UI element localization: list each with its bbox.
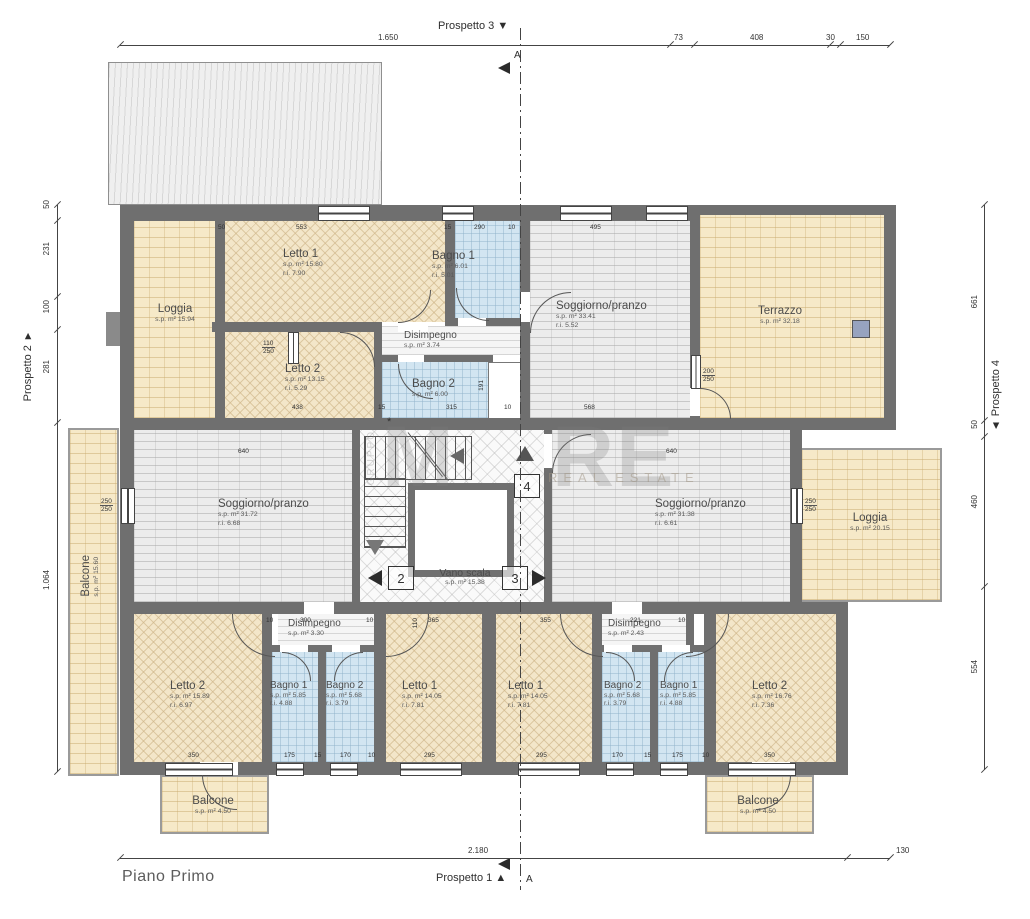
- dim-label: 1.650: [378, 33, 398, 42]
- dim-label: 231: [42, 242, 51, 255]
- window: [646, 206, 688, 221]
- marker-2: 2: [388, 566, 414, 590]
- room-label: Disimpegno s.p. m² 3.74: [404, 330, 494, 350]
- wall-dim: 110: [412, 618, 419, 628]
- prospetto-3-label: Prospetto 3 ▼: [438, 20, 508, 32]
- door-gap: [304, 602, 334, 614]
- wall-dim: 295: [424, 752, 435, 759]
- room-label: Soggiorno/pranzo s.p. m² 33.41 r.i. 5.52: [556, 300, 646, 331]
- room-label: Letto 1 s.p. m² 14.05 r.i. 7.81: [508, 680, 578, 711]
- wall-dim: 350: [188, 752, 199, 759]
- dimension-line-top: [120, 45, 890, 46]
- dimension-line-left: [57, 205, 58, 772]
- terrazzo-drain-square: [852, 320, 870, 338]
- wall: [215, 221, 225, 418]
- dimension-line-right: [984, 205, 985, 770]
- dim-label: 73: [674, 33, 683, 42]
- marker-arrow-icon: [532, 570, 546, 586]
- watermark-subtitle: REAL ESTATE: [548, 470, 700, 485]
- marker-4-label: 4: [523, 479, 530, 494]
- stair-direction-arrow-icon: [516, 446, 534, 461]
- wall-dim: 438: [292, 404, 303, 411]
- wall: [884, 205, 896, 425]
- room-label: Bagno 2 s.p. m² 6.00: [412, 378, 482, 400]
- section-arrow-icon: [498, 858, 510, 870]
- watermark-logo: M: [382, 408, 456, 507]
- door-gap: [280, 645, 308, 652]
- room-label: Balcone s.p. m² 15.60: [80, 555, 102, 597]
- wall-dim: 15: [314, 752, 321, 759]
- window: [330, 763, 358, 776]
- section-line: [520, 28, 521, 890]
- dim-label: 50: [970, 420, 979, 429]
- window-dim: 250 250: [100, 498, 113, 513]
- room-label: Bagno 2 s.p. m² 5.68 r.i. 3.79: [326, 680, 378, 709]
- wall-dim: 170: [340, 752, 351, 759]
- door-gap: [690, 388, 700, 416]
- wall-dim: 15: [644, 752, 651, 759]
- room-label: Vano scala s.p. m² 15.38: [420, 567, 510, 588]
- dim-label: 554: [970, 660, 979, 673]
- wall-dim: 10: [266, 617, 273, 624]
- dim-label: 2.180: [468, 846, 488, 855]
- wall: [212, 322, 382, 332]
- door-gap: [332, 645, 360, 652]
- room-label: Letto 2 s.p. m² 15.89 r.i. 6.97: [170, 680, 250, 711]
- dim-label: 661: [970, 295, 979, 308]
- watermark-logo: RE: [552, 408, 675, 507]
- wall-dim: 175: [284, 752, 295, 759]
- wall: [352, 430, 360, 602]
- wall-dim: 300: [300, 617, 311, 624]
- wall: [482, 614, 496, 762]
- door-gap: [612, 602, 642, 614]
- wall-dim: 50: [218, 224, 225, 231]
- wall-dim: 495: [590, 224, 601, 231]
- dim-label: 150: [856, 33, 869, 42]
- page-title: Piano Primo: [122, 868, 215, 886]
- window: [691, 355, 701, 389]
- wall-dim: 355: [540, 617, 551, 624]
- roof-hatch-area: [108, 62, 382, 205]
- room-label: Letto 1 s.p. m² 15.80 r.i. 7.90: [283, 248, 373, 279]
- wall-dim: 365: [428, 617, 439, 624]
- door-gap: [398, 355, 424, 362]
- dim-label: 1.064: [42, 570, 51, 590]
- wall-dim: 191: [478, 380, 485, 391]
- room-label: Balcone s.p. m² 4.50: [721, 795, 795, 817]
- marker-2-label: 2: [397, 571, 404, 586]
- wall-dim: 10: [504, 404, 511, 411]
- room-label: Bagno 2 s.p. m² 5.68 r.i. 3.79: [604, 680, 656, 709]
- window: [318, 206, 370, 221]
- prospetto-4-label: ▲ Prospetto 4: [990, 360, 1002, 431]
- room-label: Loggia s.p. m² 20.15: [835, 512, 905, 534]
- prospetto-1-label: Prospetto 1 ▲: [436, 872, 506, 884]
- window-dim: 200 250: [702, 368, 715, 383]
- window-dim: 110 250: [262, 340, 275, 355]
- wall-dim: 10: [508, 224, 515, 231]
- room-label: Bagno 1 s.p. m² 6.01 r.i. 5.01: [432, 250, 502, 281]
- dimension-line-bottom: [120, 858, 890, 859]
- wall-dim: 350: [764, 752, 775, 759]
- watermark-side-text: GRUPPO: [366, 430, 377, 485]
- window: [276, 763, 304, 776]
- wall-dim: 640: [238, 448, 249, 455]
- wall-dim: 221: [630, 617, 641, 624]
- wall-dim: 553: [296, 224, 307, 231]
- door-gap: [520, 292, 530, 322]
- wall-dim: 10: [702, 752, 709, 759]
- door-gap: [604, 645, 632, 652]
- dim-label: 408: [750, 33, 763, 42]
- room-label: Letto 1 s.p. m² 14.05 r.i. 7.81: [402, 680, 472, 711]
- wall-dim: 10: [368, 752, 375, 759]
- wall-dim: 170: [612, 752, 623, 759]
- room-label: Letto 2 s.p. m² 16.76 r.i. 7.36: [752, 680, 832, 711]
- room-balcone-w: [68, 428, 119, 776]
- prospetto-2-label: Prospetto 2 ▼: [22, 330, 34, 401]
- door-gap: [544, 434, 552, 468]
- dim-label: 30: [826, 33, 835, 42]
- stair-direction-arrow-icon: [366, 540, 384, 555]
- window: [442, 206, 474, 221]
- wall-dim: 175: [672, 752, 683, 759]
- marker-arrow-icon: [368, 570, 382, 586]
- wall-dim: 10: [678, 617, 685, 624]
- wall: [120, 205, 700, 221]
- window: [518, 763, 580, 776]
- window: [288, 332, 299, 364]
- window-dim: 250 250: [804, 498, 817, 513]
- dim-label: 100: [42, 300, 51, 313]
- section-mark-top: A: [514, 50, 521, 61]
- dim-label: 130: [896, 846, 909, 855]
- window: [121, 488, 135, 524]
- dim-label: 281: [42, 360, 51, 373]
- wall: [700, 205, 896, 215]
- room-label: Bagno 1 s.p. m² 5.85 r.i. 4.88: [660, 680, 712, 709]
- room-label: Loggia s.p. m² 15.94: [138, 303, 212, 325]
- wall: [378, 355, 493, 362]
- room-label: Bagno 1 s.p. m² 5.85 r.i. 4.88: [270, 680, 322, 709]
- window: [660, 763, 688, 776]
- section-mark-bottom: A: [526, 874, 533, 885]
- window: [606, 763, 634, 776]
- shaft: [488, 362, 522, 420]
- wall-dim: 10: [366, 617, 373, 624]
- wall-dim: 295: [536, 752, 547, 759]
- wall-dim: 290: [474, 224, 485, 231]
- section-arrow-icon: [498, 62, 510, 74]
- room-label: Letto 2 s.p. m² 13.15 r.i. 5.29: [285, 363, 365, 394]
- marker-3-label: 3: [511, 571, 518, 586]
- dim-label: 50: [42, 200, 51, 209]
- wall: [120, 418, 896, 430]
- pillar: [106, 312, 120, 346]
- window: [791, 488, 803, 524]
- wall: [836, 602, 848, 775]
- wall: [120, 602, 848, 614]
- room-label: Soggiorno/pranzo s.p. m² 31.72 r.i. 6.68: [218, 498, 308, 529]
- window: [400, 763, 462, 776]
- dim-label: 460: [970, 495, 979, 508]
- window: [560, 206, 612, 221]
- wall-dim: 15: [444, 224, 451, 231]
- floor-plan: 2 3 4 * Letto 1 s.p. m² 15.80 r.i. 7.90 …: [0, 0, 1030, 919]
- room-label: Terrazzo s.p. m² 32.18: [735, 305, 825, 327]
- room-label: Balcone s.p. m² 4.50: [176, 795, 250, 817]
- marker-4: 4: [514, 474, 540, 498]
